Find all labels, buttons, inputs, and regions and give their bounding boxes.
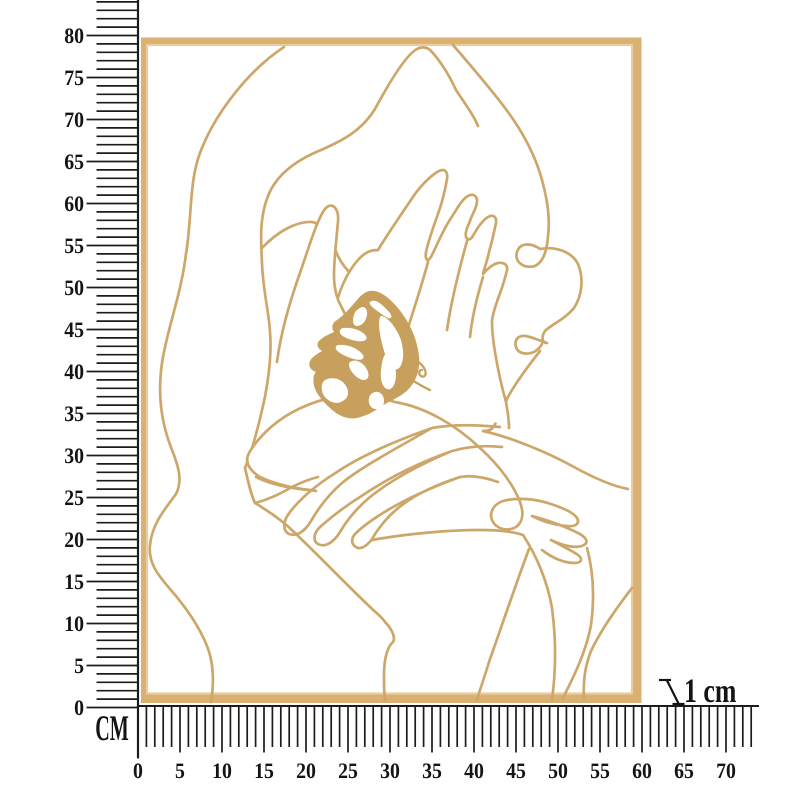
svg-text:65: 65 xyxy=(64,149,84,174)
svg-text:35: 35 xyxy=(64,401,84,426)
svg-text:50: 50 xyxy=(548,758,568,783)
svg-text:5: 5 xyxy=(175,758,185,783)
svg-text:35: 35 xyxy=(422,758,442,783)
svg-text:0: 0 xyxy=(74,695,84,720)
svg-text:70: 70 xyxy=(64,107,84,132)
svg-text:75: 75 xyxy=(64,65,84,90)
svg-text:0: 0 xyxy=(133,758,143,783)
svg-text:15: 15 xyxy=(64,569,84,594)
svg-text:60: 60 xyxy=(632,758,652,783)
svg-text:45: 45 xyxy=(506,758,526,783)
svg-text:55: 55 xyxy=(590,758,610,783)
svg-text:25: 25 xyxy=(338,758,358,783)
svg-text:5: 5 xyxy=(74,653,84,678)
svg-text:30: 30 xyxy=(64,443,84,468)
svg-text:45: 45 xyxy=(64,317,84,342)
svg-text:20: 20 xyxy=(64,527,84,552)
svg-text:1 cm: 1 cm xyxy=(684,673,736,710)
svg-text:10: 10 xyxy=(212,758,232,783)
svg-text:CM: CM xyxy=(95,708,129,748)
svg-text:30: 30 xyxy=(380,758,400,783)
svg-text:20: 20 xyxy=(296,758,316,783)
svg-text:80: 80 xyxy=(64,23,84,48)
svg-text:25: 25 xyxy=(64,485,84,510)
svg-text:55: 55 xyxy=(64,233,84,258)
svg-text:40: 40 xyxy=(464,758,484,783)
svg-text:40: 40 xyxy=(64,359,84,384)
svg-text:10: 10 xyxy=(64,611,84,636)
svg-text:50: 50 xyxy=(64,275,84,300)
svg-text:60: 60 xyxy=(64,191,84,216)
svg-text:70: 70 xyxy=(716,758,736,783)
svg-text:15: 15 xyxy=(254,758,274,783)
svg-text:65: 65 xyxy=(674,758,694,783)
